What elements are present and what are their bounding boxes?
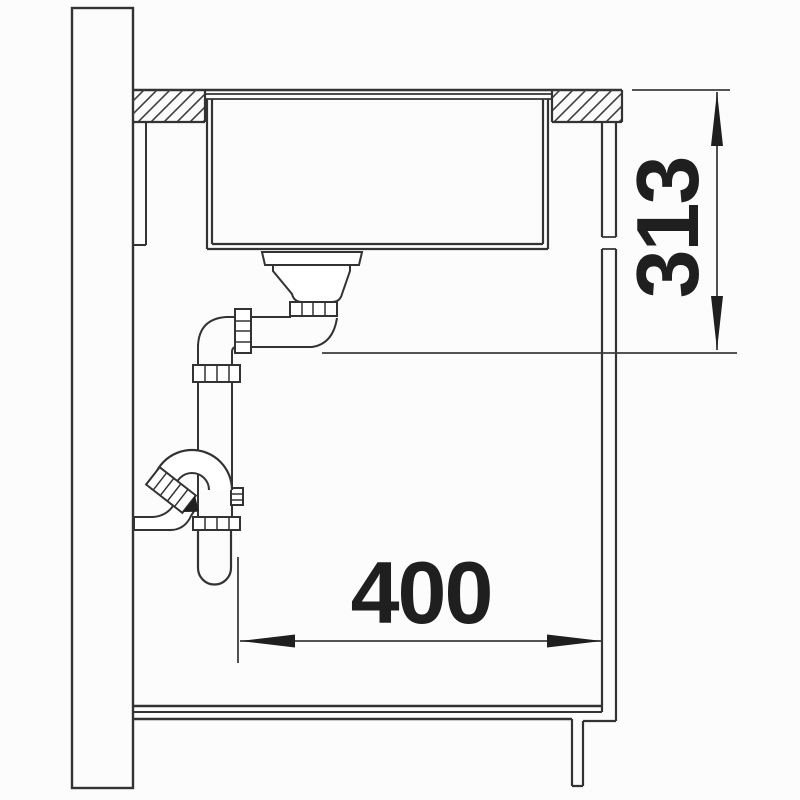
arrow-down-icon [711, 296, 723, 350]
sink-rim [205, 94, 552, 99]
arrow-left-icon [240, 635, 295, 648]
basket-strainer [262, 252, 362, 316]
sink-bowl [205, 94, 552, 249]
strainer-flange [262, 252, 362, 265]
dimension-label-width: 400 [349, 556, 493, 630]
wall-batten [134, 122, 146, 245]
sink-installation-drawing: 313 400 [0, 0, 800, 800]
pipe-joint-collar [231, 488, 243, 505]
dimension-label-height: 313 [631, 148, 705, 308]
bowl-inner-wall [212, 99, 543, 244]
bowl-outer-wall [207, 99, 548, 249]
trap-cup-bottom [198, 568, 231, 585]
siphon-trap [134, 450, 240, 585]
strainer-cup [273, 265, 350, 302]
panel-joint [602, 237, 616, 249]
drawing-canvas [0, 0, 800, 800]
trap-cup-walls [198, 530, 231, 568]
tailpipe [198, 382, 232, 517]
wall-section [72, 8, 133, 788]
plinth [572, 719, 583, 786]
arrow-right-icon [547, 635, 602, 648]
arrow-up-icon [711, 92, 723, 146]
